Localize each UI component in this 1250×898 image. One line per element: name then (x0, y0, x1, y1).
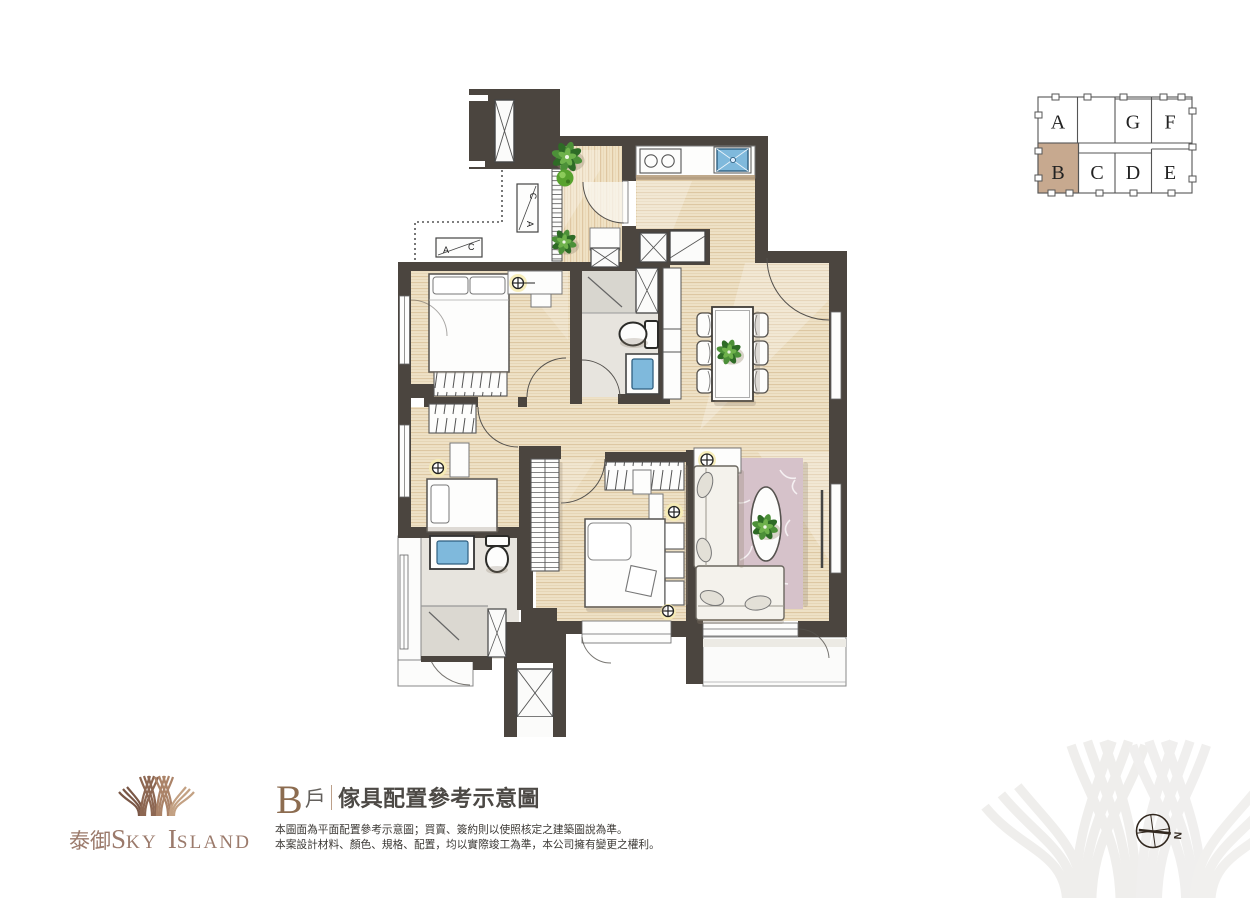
svg-text:F: F (1164, 112, 1175, 134)
svg-text:C: C (468, 242, 475, 252)
svg-text:A: A (525, 221, 535, 227)
svg-text:D: D (1126, 162, 1140, 184)
svg-text:A: A (443, 245, 449, 255)
svg-text:N: N (1171, 831, 1184, 840)
svg-text:G: G (1126, 112, 1140, 134)
svg-text:C: C (1090, 162, 1103, 184)
svg-text:C: C (528, 193, 538, 200)
svg-text:B: B (1051, 162, 1064, 184)
svg-text:E: E (1164, 162, 1176, 184)
svg-text:A: A (1051, 112, 1066, 134)
